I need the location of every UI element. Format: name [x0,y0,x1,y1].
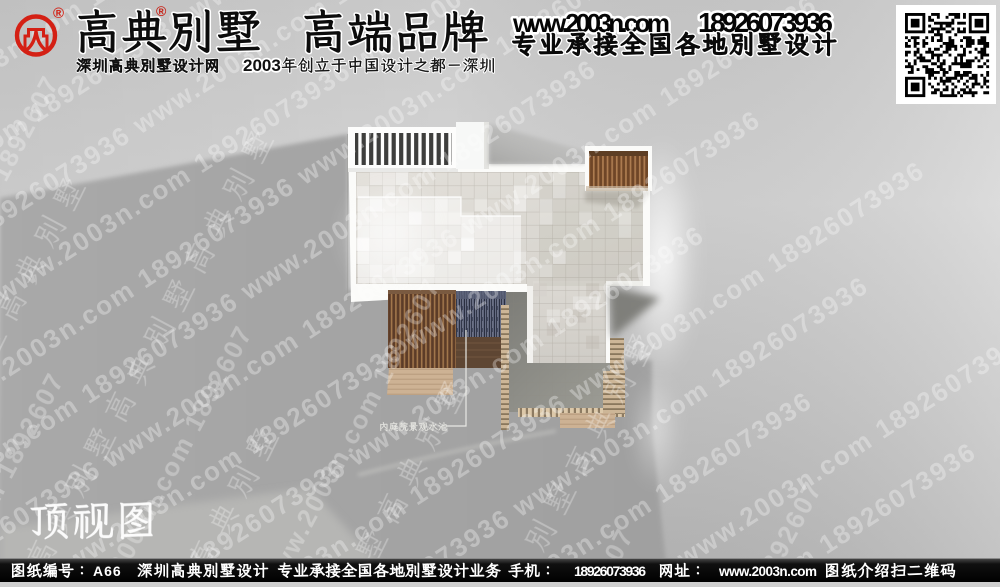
svg-text:www.2003n.com: www.2003n.com [512,8,670,38]
svg-text:®: ® [156,3,167,19]
svg-text:18926073936: 18926073936 [574,563,646,579]
svg-text:2003: 2003 [243,56,281,75]
svg-text:®: ® [53,5,64,22]
svg-text:A66: A66 [93,563,122,579]
svg-text:www.2003n.com: www.2003n.com [718,564,817,579]
